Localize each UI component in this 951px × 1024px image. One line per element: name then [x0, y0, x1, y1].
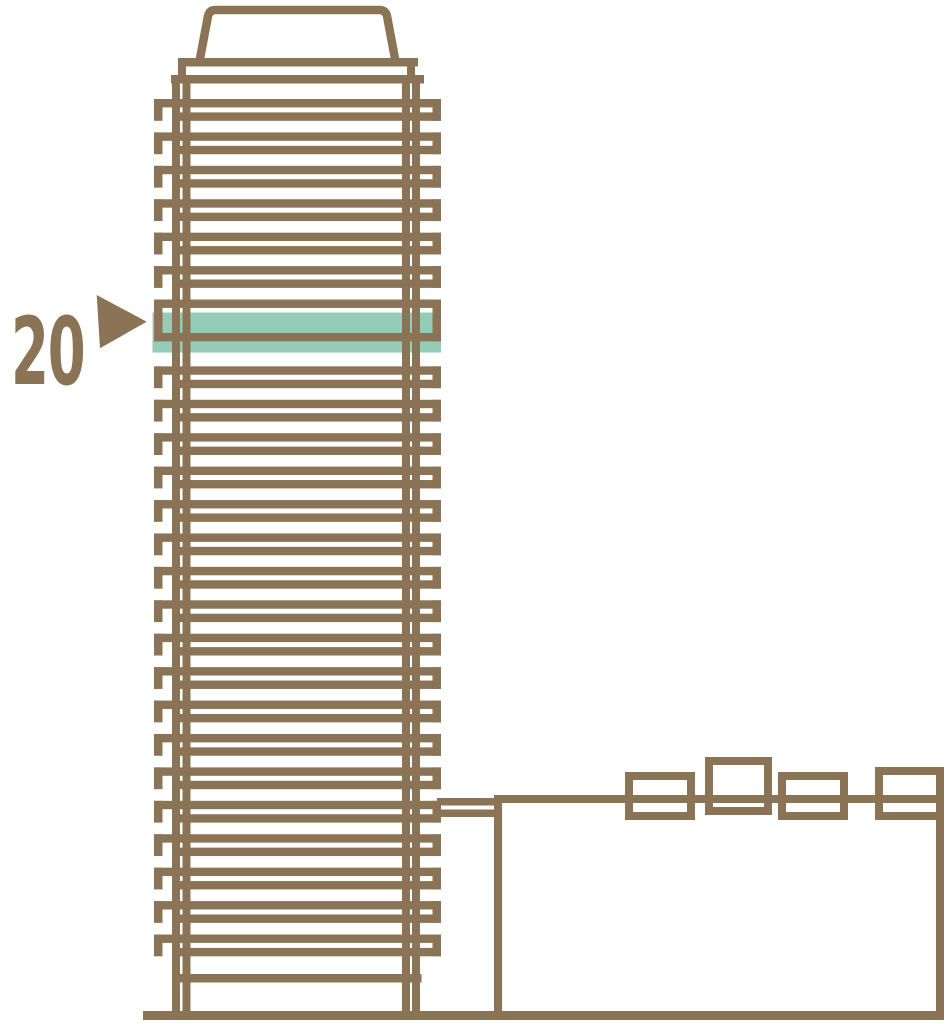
slab-cap-right — [433, 901, 442, 923]
floor-slab — [154, 467, 441, 489]
slab-bottom-line — [180, 213, 441, 221]
floor-slab — [154, 701, 441, 723]
slab-top-line — [154, 801, 441, 809]
slab-cap-right — [433, 500, 442, 522]
slab-bottom-line — [180, 480, 441, 488]
floor-slab — [154, 868, 441, 890]
slab-top-line — [154, 300, 441, 308]
slab-top-line — [154, 166, 441, 174]
slab-top-line — [154, 533, 441, 541]
slab-top-line — [154, 132, 441, 140]
podium-wall-left — [494, 795, 502, 1020]
slab-bottom-line — [180, 547, 441, 555]
slab-cap-left — [154, 400, 163, 422]
slab-cap-right — [433, 634, 442, 656]
slab-bottom-line — [180, 781, 441, 789]
slab-bottom-line — [180, 513, 441, 521]
slab-bottom-line — [180, 948, 441, 956]
floor-pointer-arrow-icon — [97, 295, 147, 348]
rooftop-structure — [709, 761, 768, 811]
slab-cap-left — [154, 199, 163, 221]
slab-cap-left — [154, 99, 163, 121]
floor-slab — [154, 834, 441, 856]
lobby-level-line — [172, 974, 422, 983]
floor-slab — [154, 734, 441, 756]
slab-cap-right — [433, 600, 442, 622]
tower-crown — [171, 10, 424, 84]
slab-cap-right — [433, 266, 442, 288]
slab-bottom-line — [180, 614, 441, 622]
ground-baseline — [143, 1011, 944, 1020]
slab-cap-left — [154, 935, 163, 957]
floor-slab — [154, 233, 441, 255]
building-floor-diagram: 20 — [0, 0, 951, 1024]
slab-top-line — [154, 433, 441, 441]
link-top-line — [437, 798, 502, 806]
slab-bottom-line — [180, 179, 441, 187]
floor-slab — [154, 935, 441, 957]
slab-cap-right — [433, 300, 442, 342]
slab-bottom-line — [180, 146, 441, 154]
floor-slab — [154, 400, 441, 422]
slab-top-line — [154, 567, 441, 575]
floor-slab — [154, 500, 441, 522]
slab-cap-left — [154, 701, 163, 723]
floor-slab — [154, 901, 441, 923]
wall-left-outer — [172, 79, 180, 1020]
slab-bottom-line — [180, 580, 441, 588]
slab-cap-left — [154, 801, 163, 823]
tower-podium-link — [437, 798, 502, 817]
slab-bottom-line — [180, 714, 441, 722]
floor-slab — [154, 567, 441, 589]
slab-cap-left — [154, 834, 163, 856]
slab-bottom-line — [180, 280, 441, 288]
slab-bottom-line — [180, 380, 441, 388]
slab-top-line — [154, 199, 441, 207]
slab-cap-left — [154, 901, 163, 923]
slab-top-line — [154, 901, 441, 909]
link-bottom-line — [437, 810, 502, 818]
slab-cap-left — [154, 868, 163, 890]
slab-top-line — [154, 600, 441, 608]
slab-top-line — [154, 99, 441, 107]
slab-bottom-line — [180, 246, 441, 254]
crown-cap — [199, 10, 396, 64]
slab-cap-left — [154, 634, 163, 656]
slab-cap-right — [433, 233, 442, 255]
slab-cap-right — [433, 935, 442, 957]
slab-cap-right — [433, 132, 442, 154]
slab-cap-left — [154, 166, 163, 188]
slab-cap-right — [433, 567, 442, 589]
slab-cap-right — [433, 533, 442, 555]
slab-cap-right — [433, 834, 442, 856]
slab-bottom-line — [180, 747, 441, 755]
floor-slabs — [154, 99, 441, 983]
slab-bottom-line — [154, 333, 441, 341]
floor-slab — [154, 166, 441, 188]
slab-bottom-line — [180, 814, 441, 822]
slab-cap-right — [433, 433, 442, 455]
slab-top-line — [154, 868, 441, 876]
floor-slab — [154, 667, 441, 689]
floor-slab — [154, 600, 441, 622]
slab-top-line — [154, 935, 441, 943]
building-elevation: 20 — [0, 0, 951, 1024]
parapet-upper-line — [178, 58, 418, 67]
slab-cap-right — [433, 701, 442, 723]
slab-cap-left — [154, 767, 163, 789]
slab-cap-left — [154, 600, 163, 622]
floor-slab — [154, 634, 441, 656]
slab-cap-left — [154, 533, 163, 555]
slab-cap-left — [154, 233, 163, 255]
floor-slab — [154, 767, 441, 789]
slab-top-line — [154, 233, 441, 241]
slab-cap-right — [433, 400, 442, 422]
wall-right-inner — [402, 79, 410, 1020]
slab-top-line — [154, 266, 441, 274]
slab-bottom-line — [180, 447, 441, 455]
slab-cap-left — [154, 366, 163, 388]
slab-cap-right — [433, 166, 442, 188]
floor-slab — [154, 366, 441, 388]
slab-cap-left — [154, 500, 163, 522]
floor-slab — [154, 533, 441, 555]
floor-slab — [154, 199, 441, 221]
wall-right-outer — [412, 79, 420, 1020]
slab-cap-left — [154, 300, 163, 342]
slab-cap-left — [154, 734, 163, 756]
slab-cap-right — [433, 667, 442, 689]
slab-cap-left — [154, 567, 163, 589]
slab-cap-right — [433, 767, 442, 789]
slab-cap-right — [433, 868, 442, 890]
slab-top-line — [154, 467, 441, 475]
slab-top-line — [154, 500, 441, 508]
rooftop-structure — [879, 771, 940, 816]
slab-cap-left — [154, 266, 163, 288]
floor-slab — [154, 132, 441, 154]
slab-top-line — [154, 634, 441, 642]
floor-slab — [154, 99, 441, 121]
slab-cap-left — [154, 433, 163, 455]
slab-bottom-line — [180, 413, 441, 421]
floor-number-label: 20 — [11, 298, 85, 407]
wall-left-inner — [183, 79, 191, 1020]
slab-cap-left — [154, 667, 163, 689]
slab-cap-left — [154, 132, 163, 154]
ground-line — [143, 1011, 944, 1020]
slab-top-line — [154, 834, 441, 842]
slab-bottom-line — [180, 881, 441, 889]
slab-top-line — [154, 667, 441, 675]
floor-slab — [154, 266, 441, 288]
slab-top-line — [154, 767, 441, 775]
highlighted-floor-band — [153, 313, 442, 353]
floor-slab — [154, 433, 441, 455]
slab-cap-right — [433, 734, 442, 756]
slab-top-line — [154, 734, 441, 742]
slab-cap-right — [433, 366, 442, 388]
slab-cap-left — [154, 467, 163, 489]
slab-bottom-line — [180, 848, 441, 856]
slab-top-line — [154, 366, 441, 374]
slab-bottom-line — [180, 681, 441, 689]
podium-wall-right — [936, 795, 944, 1020]
podium-building — [494, 761, 944, 1020]
highlighted-floor-fill — [153, 313, 442, 353]
slab-bottom-line — [180, 914, 441, 922]
parapet-lower-line — [171, 75, 424, 84]
slab-top-line — [154, 701, 441, 709]
slab-cap-right — [433, 99, 442, 121]
slab-cap-right — [433, 199, 442, 221]
slab-bottom-line — [180, 647, 441, 655]
slab-top-line — [154, 400, 441, 408]
floor-slab — [154, 801, 441, 823]
slab-bottom-line — [180, 112, 441, 120]
slab-cap-right — [433, 467, 442, 489]
